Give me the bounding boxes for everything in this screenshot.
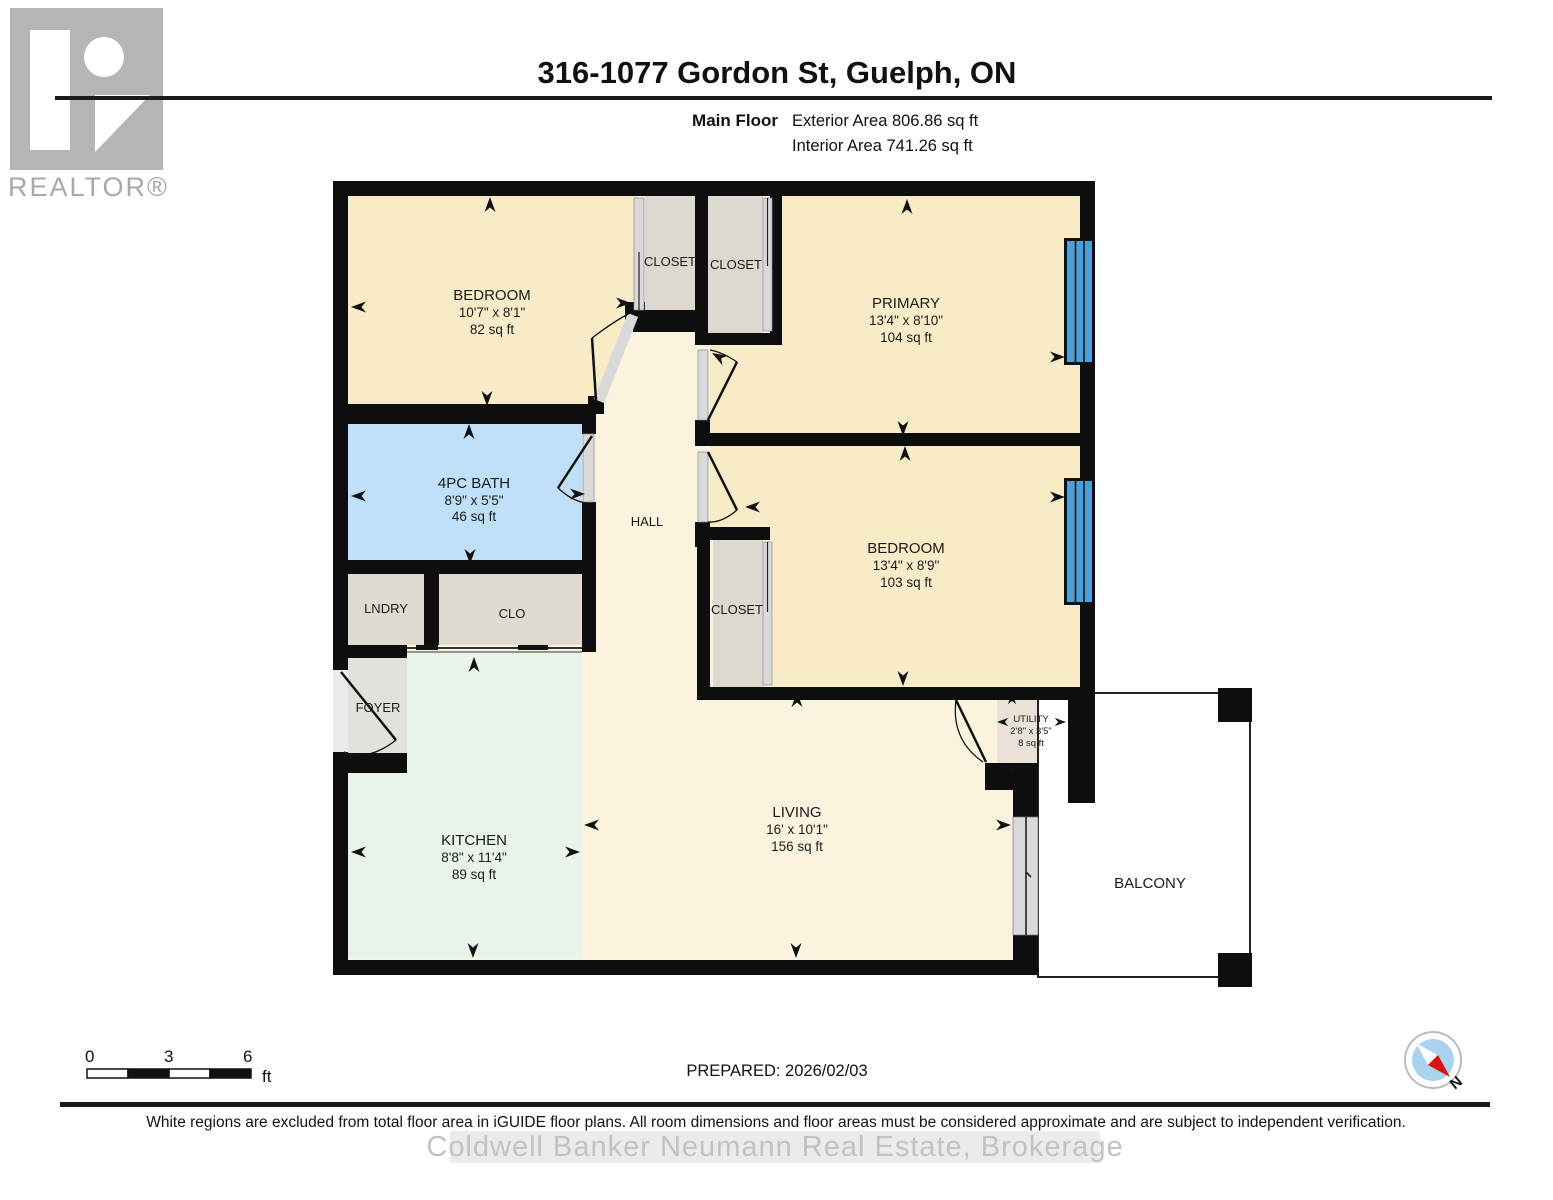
closet2-label: CLOSET: [710, 257, 762, 272]
foyer-label: FOYER: [356, 700, 401, 715]
primary-door-opening: [698, 350, 708, 420]
utility-dims: 2'8" x 3'5": [1010, 726, 1052, 737]
primary-area: 104 sq ft: [880, 330, 932, 345]
header-rule: [55, 96, 1492, 100]
footer-rule: [60, 1102, 1490, 1107]
floorplan-page: REALTOR® 316-1077 Gordon St, Guelph, ON …: [0, 0, 1553, 1200]
bedroom1-name: BEDROOM: [453, 287, 531, 304]
bath-door-opening: [583, 434, 594, 502]
watermark-text: Coldwell Banker Neumann Real Estate, Bro…: [426, 1131, 1123, 1163]
utility-name: UTILITY: [1013, 714, 1049, 725]
page-title: 316-1077 Gordon St, Guelph, ON: [538, 55, 1017, 90]
bath-dims: 8'9" x 5'5": [444, 493, 503, 508]
kitchen-area: 89 sq ft: [452, 867, 497, 882]
scale-tick-0: 0: [85, 1047, 94, 1066]
clo-label: CLO: [499, 606, 526, 621]
compass-icon: N: [1405, 1032, 1466, 1093]
hall-label: HALL: [631, 514, 664, 529]
closet3-label: CLOSET: [711, 602, 763, 617]
scale-tick-6: 6: [243, 1047, 252, 1066]
window-bedroom2: [1064, 478, 1095, 605]
bedroom2-area: 103 sq ft: [880, 575, 932, 590]
room-bath-floor: [348, 424, 582, 560]
closet1-label: CLOSET: [644, 254, 696, 269]
bath-name: 4PC BATH: [438, 475, 510, 492]
balcony-sliding-door: [1013, 817, 1038, 935]
floor-label: Main Floor: [692, 111, 778, 130]
exterior-area: Exterior Area 806.86 sq ft: [792, 112, 979, 130]
kitchen-name: KITCHEN: [441, 832, 507, 849]
scale-unit: ft: [262, 1067, 272, 1086]
brokerage-watermark: Coldwell Banker Neumann Real Estate, Bro…: [426, 1131, 1123, 1163]
living-area: 156 sq ft: [771, 839, 823, 854]
bedroom1-dims: 10'7" x 8'1": [459, 305, 526, 320]
realtor-wordmark: REALTOR®: [8, 172, 169, 202]
scale-tick-3: 3: [164, 1047, 173, 1066]
interior-area: Interior Area 741.26 sq ft: [792, 137, 973, 155]
bedroom2-name: BEDROOM: [867, 540, 945, 557]
prepared-date: PREPARED: 2026/02/03: [686, 1062, 867, 1080]
bedroom2-door-opening: [698, 452, 708, 522]
living-dims: 16' x 10'1": [766, 822, 828, 837]
window-primary: [1064, 238, 1095, 365]
primary-dims: 13'4" x 8'10": [869, 313, 943, 328]
balcony-label: BALCONY: [1114, 875, 1186, 892]
bedroom2-dims: 13'4" x 8'9": [873, 558, 940, 573]
kitchen-dims: 8'8" x 11'4": [441, 850, 507, 865]
realtor-logo-icon: REALTOR®: [8, 8, 169, 202]
bedroom1-area: 82 sq ft: [470, 322, 515, 337]
bath-area: 46 sq ft: [452, 509, 497, 524]
lndry-label: LNDRY: [364, 601, 408, 616]
disclaimer-text: White regions are excluded from total fl…: [146, 1114, 1406, 1131]
living-name: LIVING: [772, 804, 821, 821]
scale-bar: 0 3 6 ft: [85, 1047, 272, 1086]
primary-name: PRIMARY: [872, 295, 940, 312]
utility-area: 8 sq ft: [1018, 738, 1044, 749]
entry-door-opening: [333, 670, 348, 752]
